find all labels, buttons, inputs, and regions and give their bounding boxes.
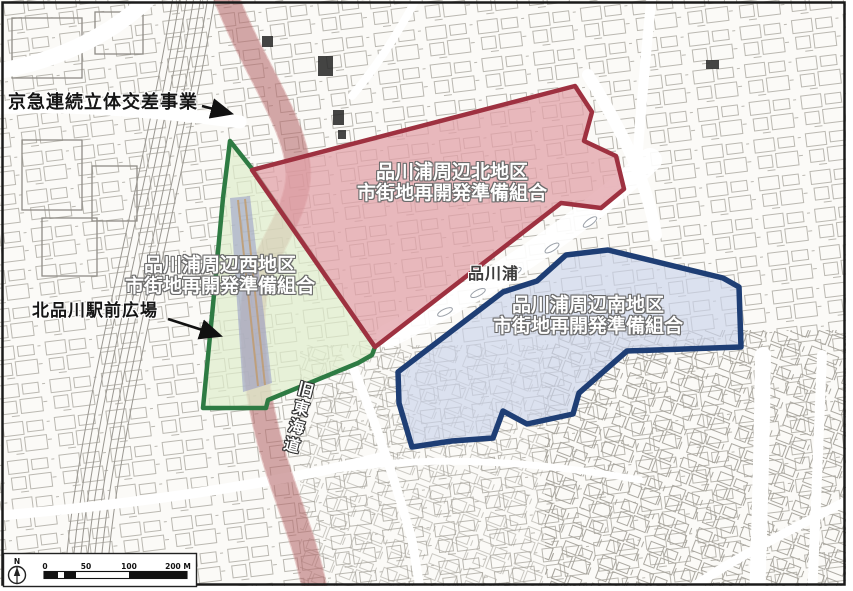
compass-n: N (14, 557, 20, 566)
west-district-org: 市街地再開発準備組合 (125, 276, 315, 297)
kitashinagawa-plaza-label: 北品川駅前広場 (32, 302, 158, 321)
scale-bar: N 0 50 100 200 M (4, 554, 197, 587)
scale-tick-0: 0 (42, 562, 47, 571)
keikyu-project-label: 京急連続立体交差事業 (8, 93, 198, 113)
south-district-label: 品川浦周辺南地区 市街地再開発準備組合 (493, 295, 683, 338)
west-district-label: 品川浦周辺西地区 市街地再開発準備組合 (125, 255, 315, 298)
west-district-name: 品川浦周辺西地区 (125, 255, 315, 276)
south-district-name: 品川浦周辺南地区 (493, 295, 683, 316)
south-district-org: 市街地再開発準備組合 (493, 316, 683, 337)
north-district-name: 品川浦周辺北地区 (357, 162, 547, 183)
margin-right (846, 0, 853, 591)
scale-tick-100: 100 (121, 562, 137, 571)
scale-tick-50: 50 (81, 562, 91, 571)
map-container: N 0 50 100 200 M 京急連続立体交差事業 品川浦周辺北地区 市街地… (0, 0, 853, 591)
shinagawa-ura-label: 品川浦 (468, 265, 519, 283)
scale-tick-200: 200 M (165, 562, 191, 571)
north-district-label: 品川浦周辺北地区 市街地再開発準備組合 (357, 162, 547, 205)
north-district-org: 市街地再開発準備組合 (357, 183, 547, 204)
